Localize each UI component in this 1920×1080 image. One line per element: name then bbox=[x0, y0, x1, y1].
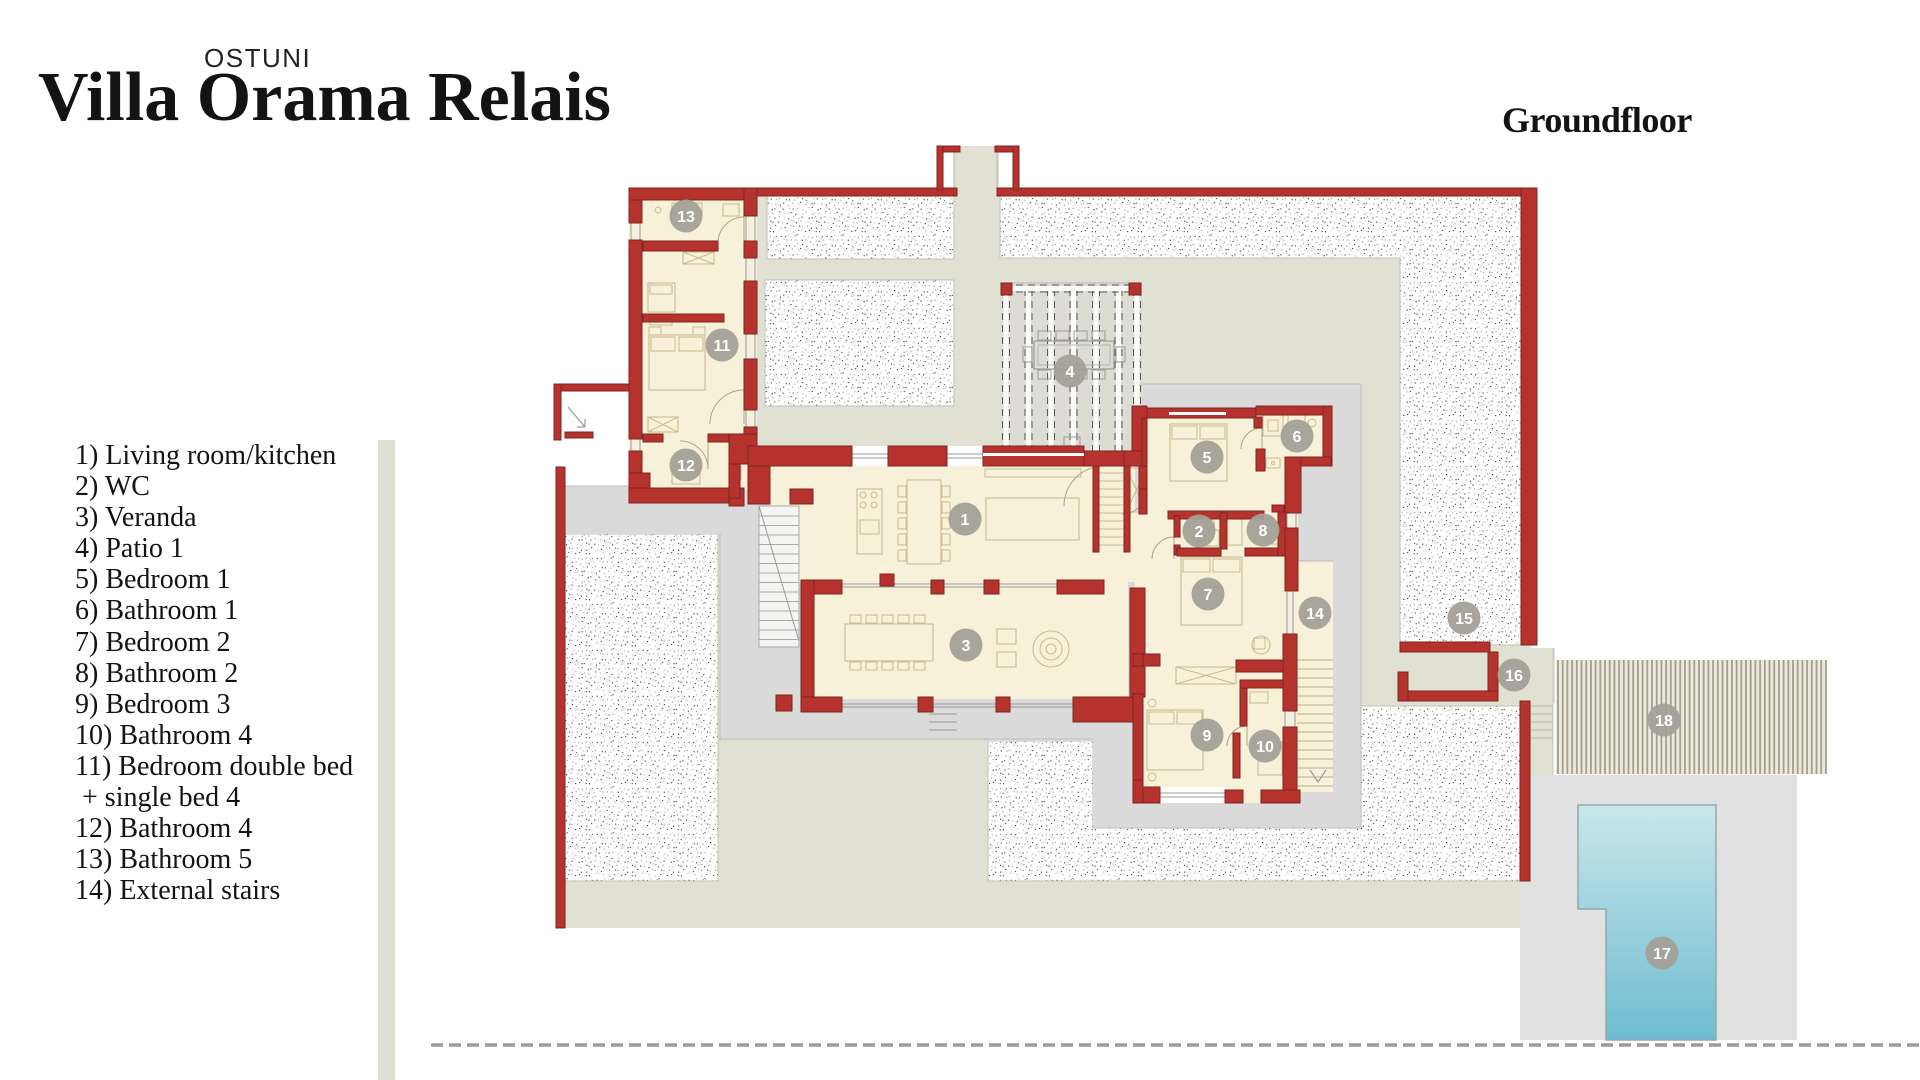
svg-text:7: 7 bbox=[1204, 587, 1213, 604]
svg-text:12: 12 bbox=[677, 458, 695, 475]
svg-text:13: 13 bbox=[677, 209, 695, 226]
svg-text:18: 18 bbox=[1655, 713, 1673, 730]
svg-text:16: 16 bbox=[1505, 668, 1523, 685]
svg-text:2: 2 bbox=[1195, 524, 1204, 541]
svg-text:4: 4 bbox=[1066, 364, 1075, 381]
svg-text:5: 5 bbox=[1203, 450, 1212, 467]
svg-text:15: 15 bbox=[1455, 611, 1473, 628]
svg-text:14: 14 bbox=[1306, 606, 1324, 623]
svg-text:8: 8 bbox=[1259, 523, 1268, 540]
svg-text:9: 9 bbox=[1203, 728, 1212, 745]
svg-text:10: 10 bbox=[1256, 739, 1274, 756]
svg-text:1: 1 bbox=[961, 512, 970, 529]
svg-text:3: 3 bbox=[962, 638, 971, 655]
svg-text:6: 6 bbox=[1293, 429, 1302, 446]
svg-text:11: 11 bbox=[714, 338, 731, 355]
svg-text:17: 17 bbox=[1653, 946, 1671, 963]
